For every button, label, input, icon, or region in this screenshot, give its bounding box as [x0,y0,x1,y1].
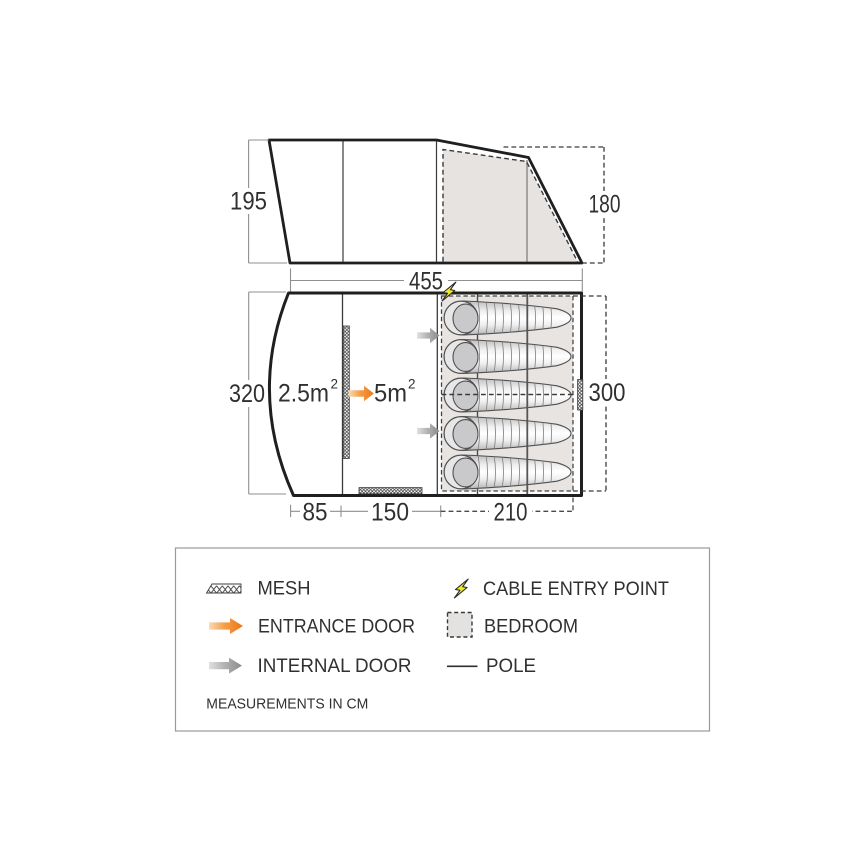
svg-text:BEDROOM: BEDROOM [484,617,578,638]
svg-text:180: 180 [589,191,621,219]
svg-text:2: 2 [408,377,416,392]
svg-text:5m: 5m [374,380,407,408]
svg-text:320: 320 [229,380,265,408]
svg-text:INTERNAL DOOR: INTERNAL DOOR [258,656,412,677]
svg-text:2: 2 [331,377,339,392]
svg-text:455: 455 [409,268,443,296]
svg-text:ENTRANCE DOOR: ENTRANCE DOOR [258,617,415,638]
svg-text:195: 195 [230,188,267,216]
svg-text:POLE: POLE [486,656,536,677]
svg-text:300: 300 [589,379,626,407]
svg-text:MEASUREMENTS IN CM: MEASUREMENTS IN CM [206,696,368,713]
svg-text:150: 150 [371,499,409,527]
svg-text:85: 85 [303,499,328,527]
svg-text:210: 210 [494,499,528,527]
svg-text:2.5m: 2.5m [278,380,329,408]
svg-text:MESH: MESH [258,579,311,600]
svg-text:CABLE ENTRY POINT: CABLE ENTRY POINT [483,579,669,600]
